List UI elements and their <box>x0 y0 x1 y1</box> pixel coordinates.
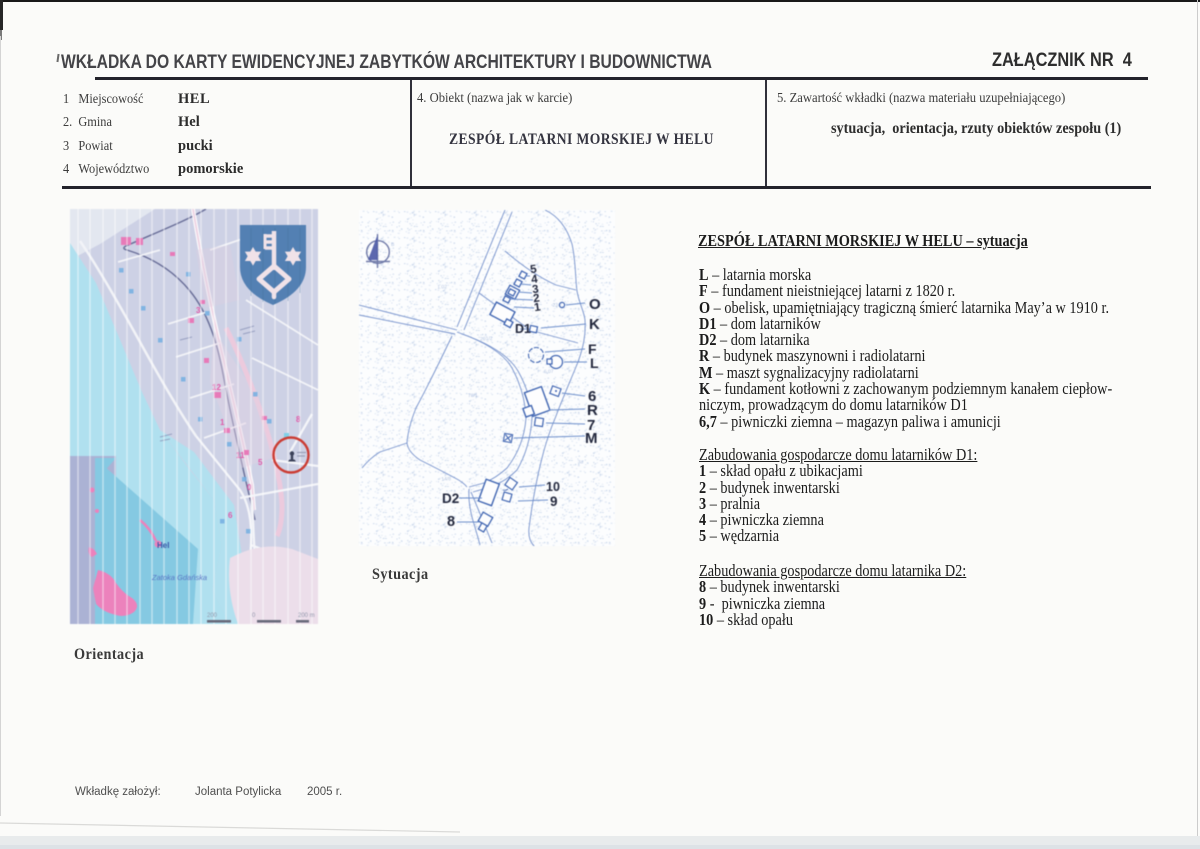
svg-text:1: 1 <box>220 418 225 427</box>
svg-text:1.02: 1.02 <box>437 284 447 291</box>
svg-text:3a: 3a <box>578 459 584 465</box>
svg-text:K: K <box>589 316 600 333</box>
svg-text:3: 3 <box>196 306 201 315</box>
svg-text:6.07: 6.07 <box>544 369 554 376</box>
svg-text:200: 200 <box>207 613 218 619</box>
svg-text:201/2: 201/2 <box>480 336 493 343</box>
svg-text:5: 5 <box>258 458 263 467</box>
svg-text:Hel: Hel <box>157 541 169 550</box>
svg-text:14/8: 14/8 <box>441 476 451 483</box>
svg-text:9: 9 <box>550 494 558 509</box>
svg-text:Zatoka Gdańska: Zatoka Gdańska <box>151 573 207 582</box>
svg-text:200 m: 200 m <box>298 613 315 619</box>
svg-text:O: O <box>589 296 601 313</box>
svg-text:10: 10 <box>546 480 560 494</box>
svg-text:8: 8 <box>447 514 455 530</box>
svg-text:6: 6 <box>228 511 233 520</box>
svg-text:M: M <box>585 430 598 447</box>
svg-text:78/1: 78/1 <box>468 393 478 400</box>
svg-text:D2: D2 <box>442 491 459 506</box>
svg-text:D1: D1 <box>515 322 531 336</box>
svg-text:L: L <box>590 355 599 371</box>
